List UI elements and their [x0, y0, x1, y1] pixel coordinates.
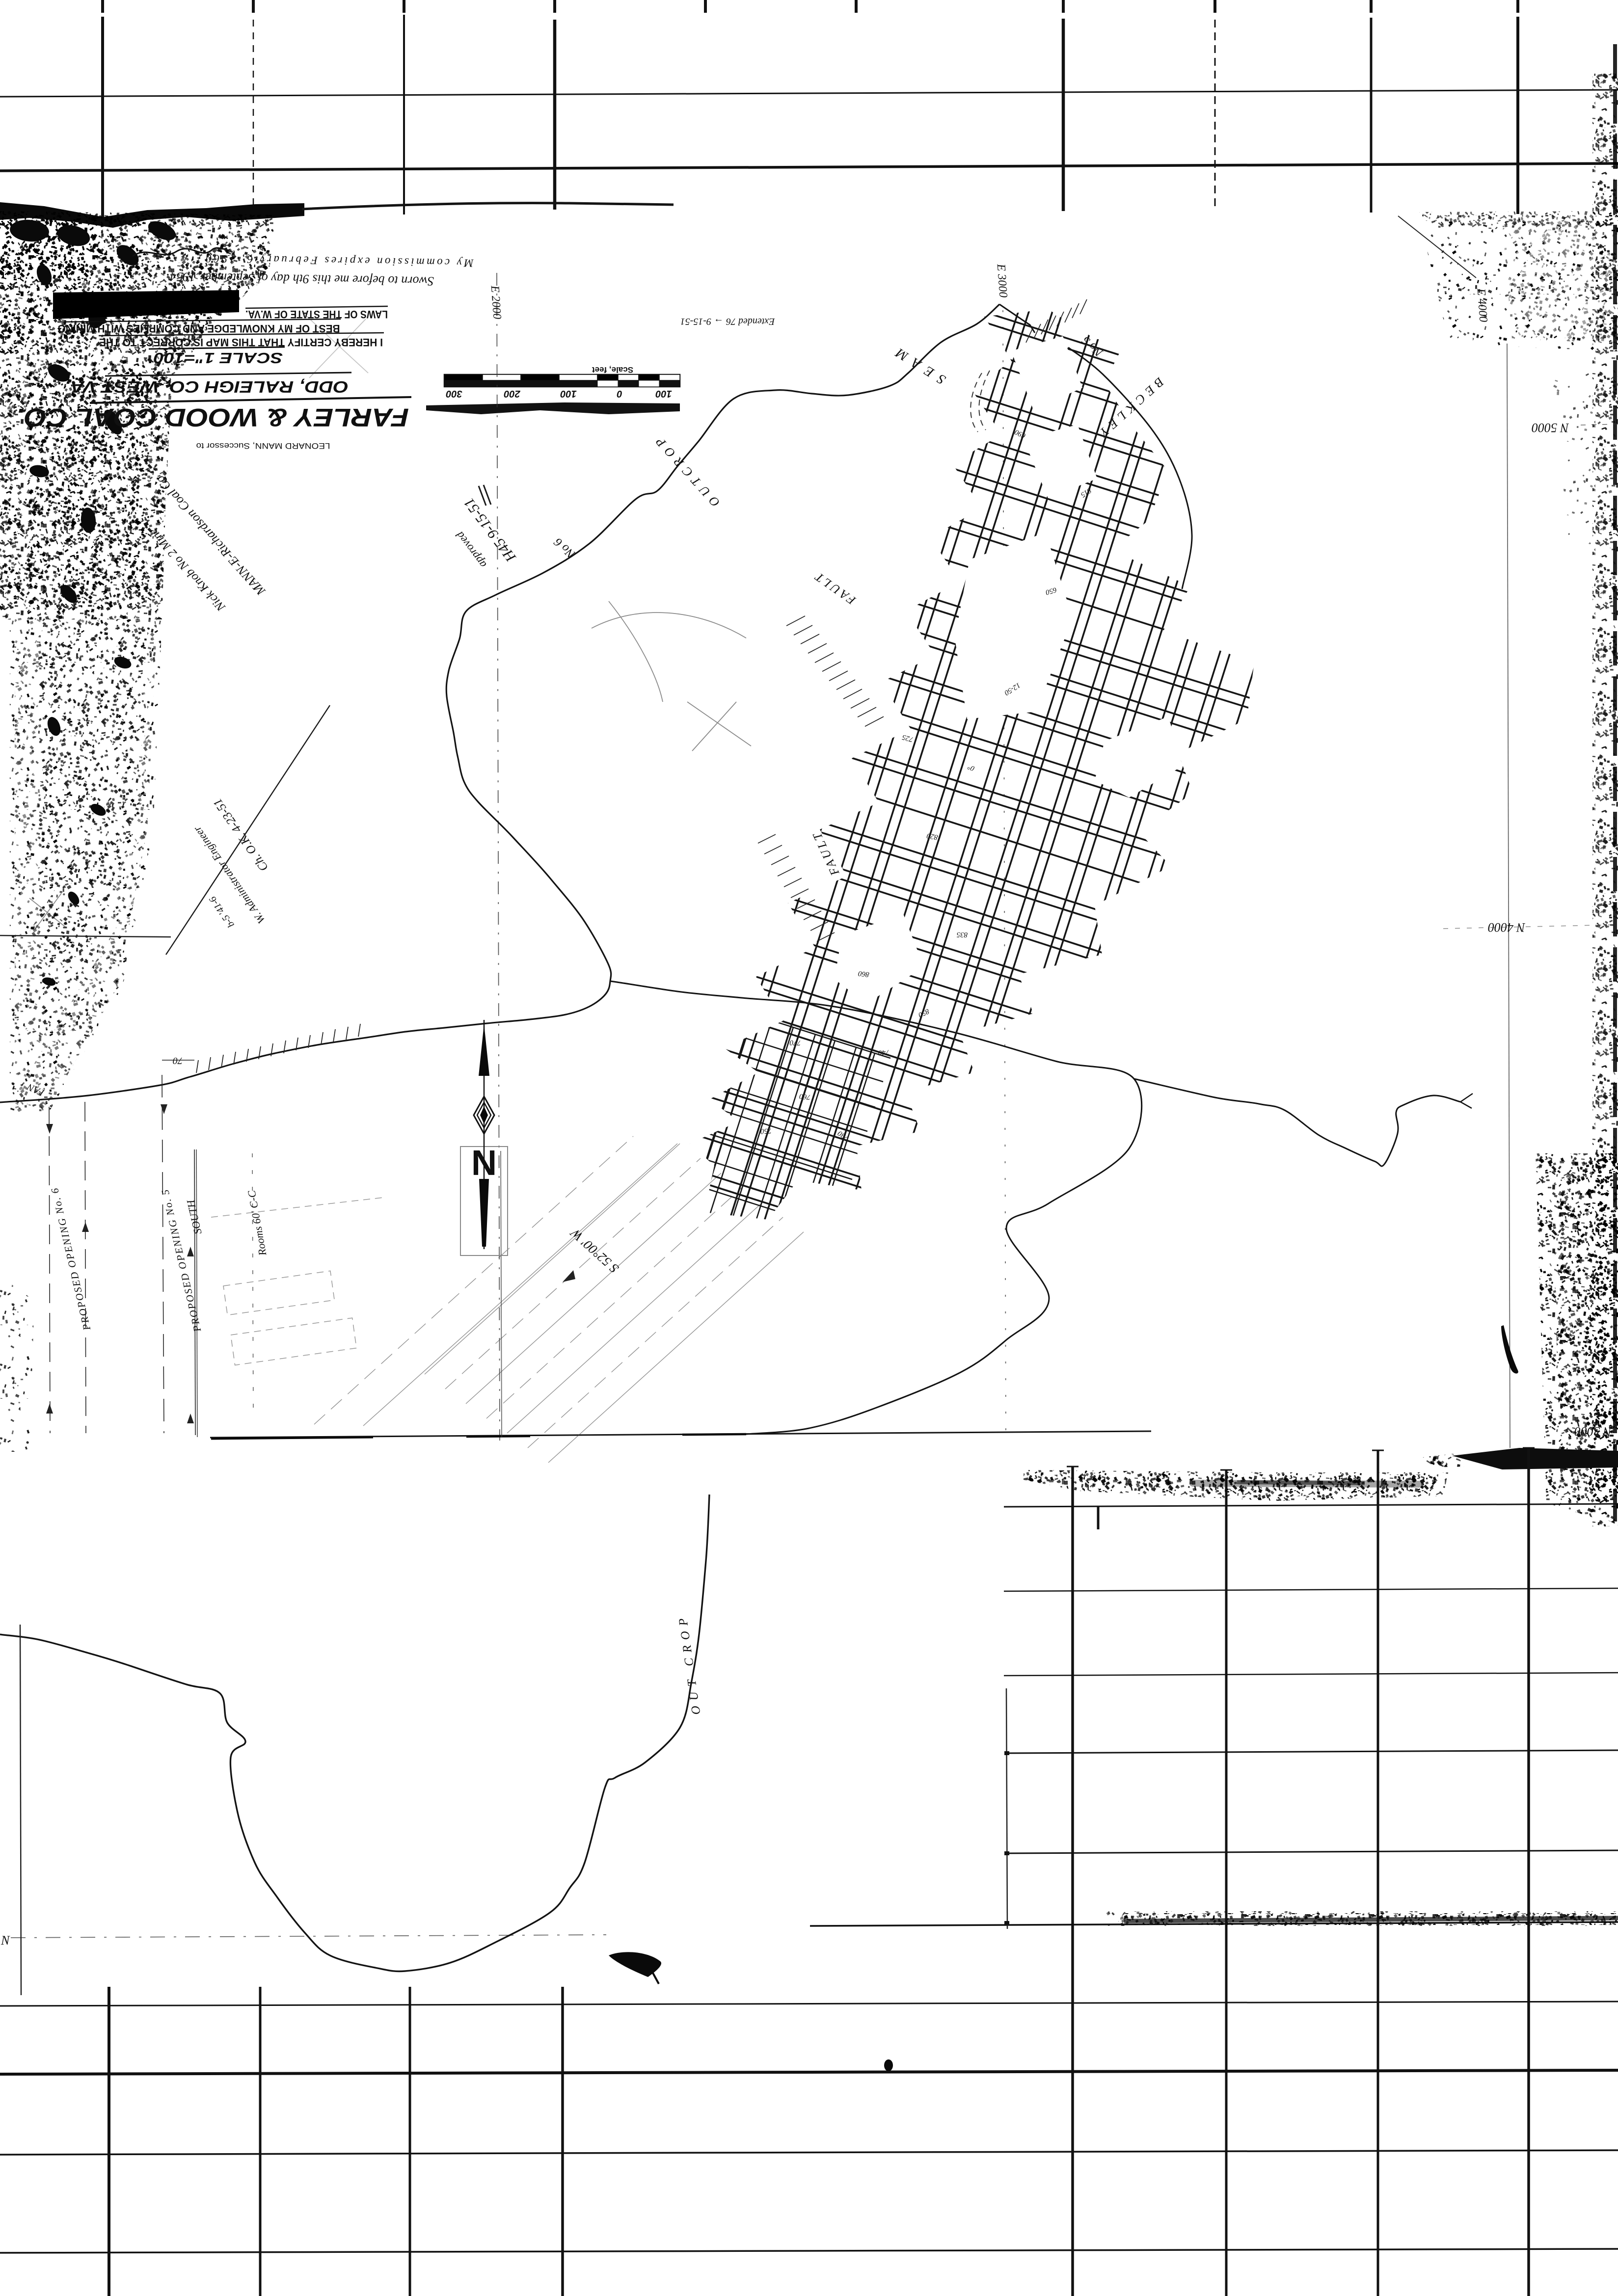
svg-text:E 2000: E 2000 [488, 285, 504, 320]
svg-text:FARLEY & WOOD COAL CO.: FARLEY & WOOD COAL CO. [16, 403, 409, 431]
svg-text:N: N [471, 1143, 497, 1182]
svg-text:ODD, RALEIGH CO. WEST VA.: ODD, RALEIGH CO. WEST VA. [65, 378, 349, 396]
svg-text:750: 750 [760, 1126, 772, 1135]
svg-text:LEONARD MANN, Successor to: LEONARD MANN, Successor to [196, 441, 330, 451]
svg-text:835: 835 [956, 931, 968, 938]
svg-text:300: 300 [446, 388, 462, 399]
svg-text:760: 760 [799, 1092, 810, 1101]
svg-text:SCALE 1"=100': SCALE 1"=100' [148, 349, 283, 367]
svg-text:N 3000: N 3000 [1574, 1424, 1612, 1439]
svg-text:100: 100 [655, 388, 672, 399]
svg-text:LAWS OF THE STATE OF W.VA.: LAWS OF THE STATE OF W.VA. [245, 308, 388, 320]
svg-text:70: 70 [173, 1055, 183, 1066]
svg-text:N 5000: N 5000 [1532, 421, 1569, 435]
svg-text:E 3000: E 3000 [995, 263, 1010, 298]
svg-text:Extended 76 → 9-15-51: Extended 76 → 9-15-51 [680, 316, 776, 327]
svg-text:0: 0 [617, 388, 622, 399]
svg-text:200: 200 [504, 388, 520, 399]
svg-text:860: 860 [858, 969, 870, 979]
svg-text:Scale, feet: Scale, feet [592, 365, 633, 374]
svg-text:I HEREBY CERTIFY THAT THIS MAP: I HEREBY CERTIFY THAT THIS MAP IS CORREC… [99, 336, 383, 348]
svg-text:E 4000: E 4000 [1475, 288, 1490, 322]
svg-text:N: N [0, 1933, 10, 1948]
svg-text:100: 100 [560, 388, 576, 399]
svg-text:770: 770 [789, 1039, 801, 1046]
svg-text:BEST OF MY KNOWLEDGE AND COMPL: BEST OF MY KNOWLEDGE AND COMPLIES WITH M… [58, 322, 340, 335]
svg-text:740: 740 [878, 1048, 890, 1056]
